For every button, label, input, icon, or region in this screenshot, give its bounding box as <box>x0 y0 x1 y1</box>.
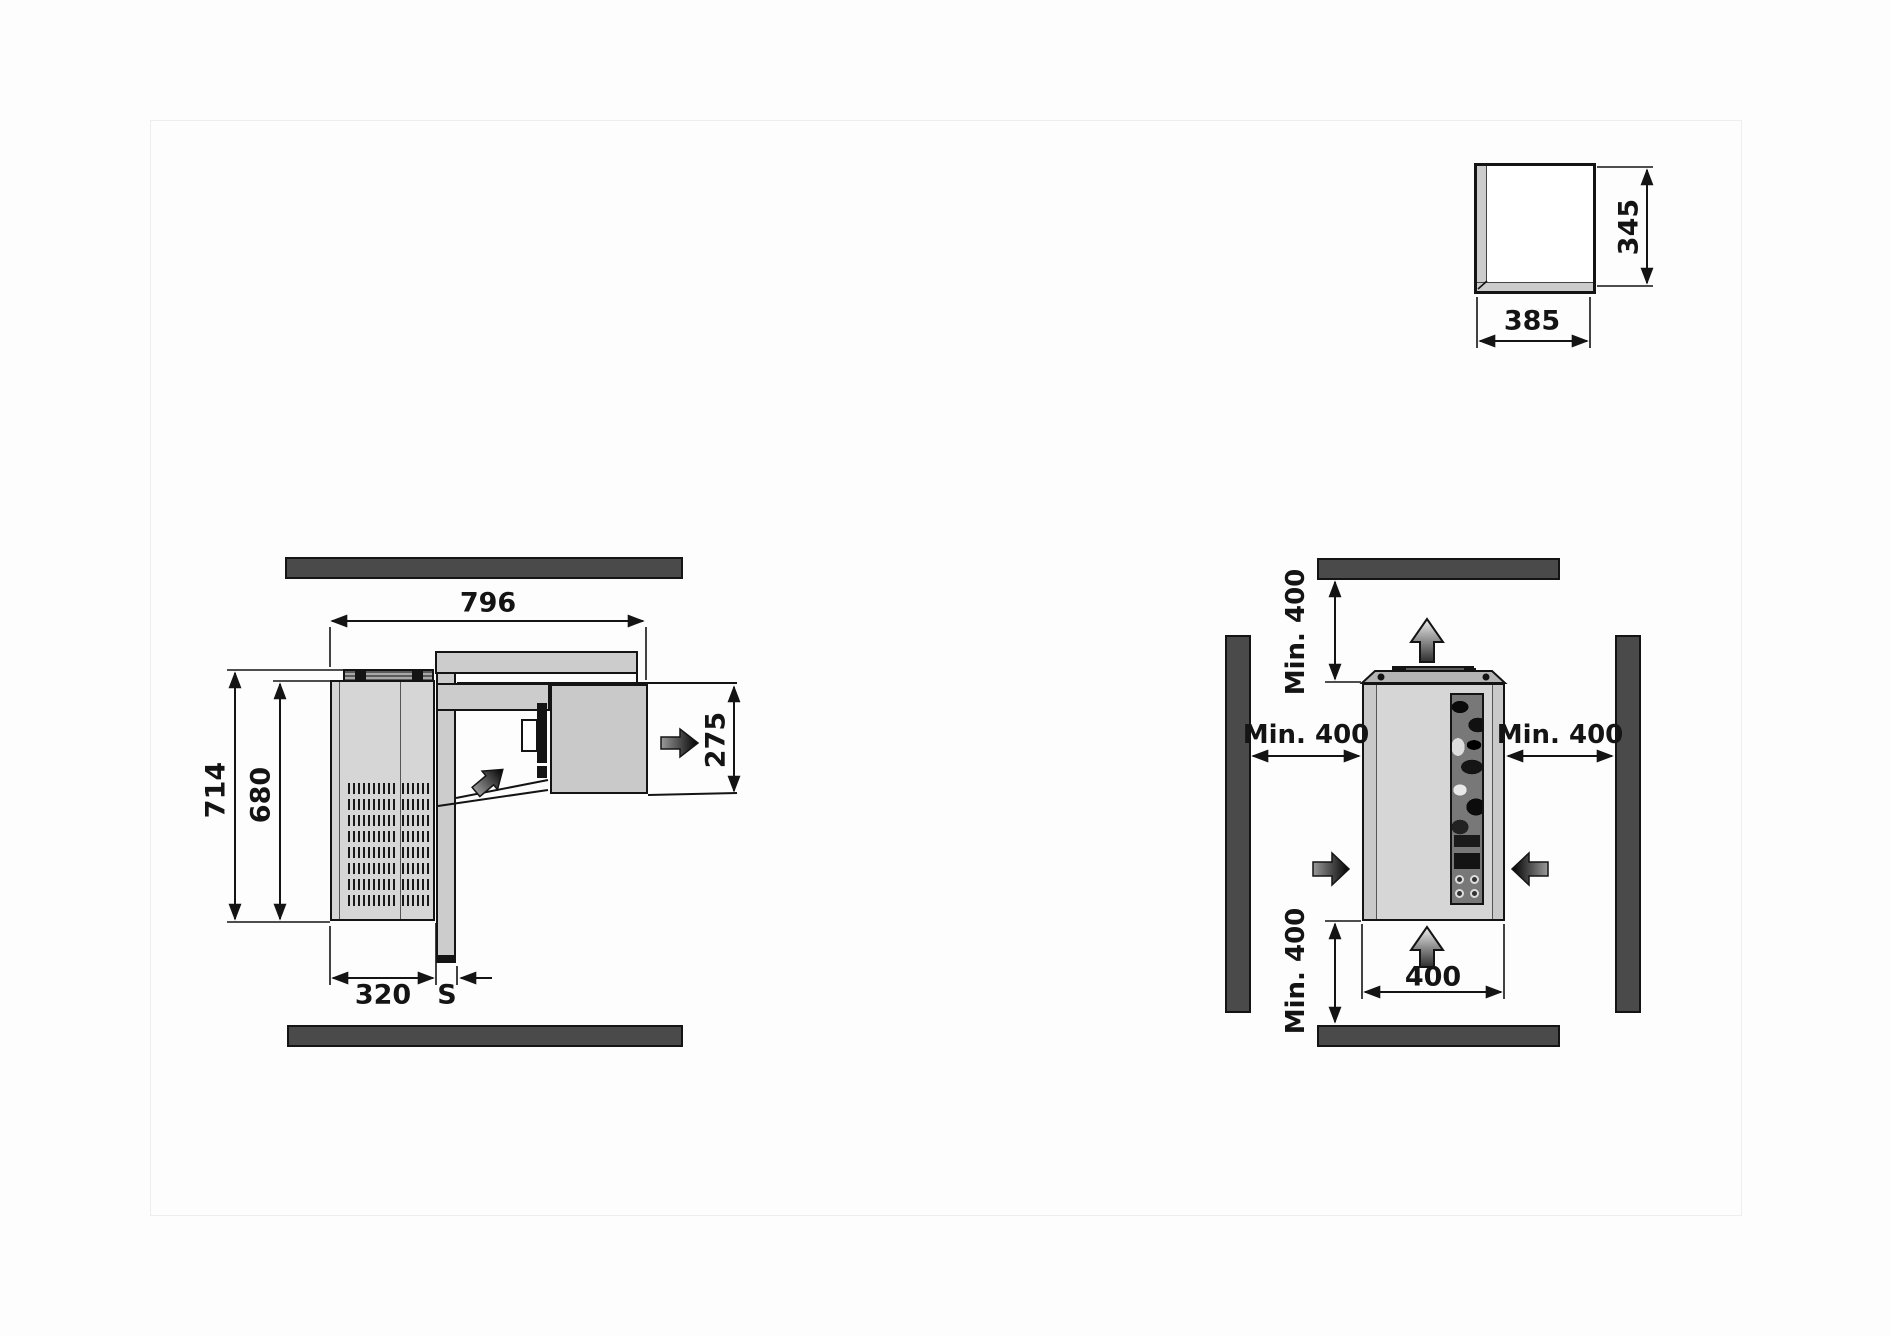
fan-motor-box <box>521 719 538 752</box>
dim-label-796: 796 <box>460 590 516 617</box>
niche-inner-left-face <box>1477 166 1487 291</box>
flange-clamp-left <box>355 671 366 680</box>
right-view-bottom-wall-bar <box>1317 1025 1560 1047</box>
unit-panel-seam-right <box>400 682 401 919</box>
left-view-bottom-wall-bar <box>287 1025 683 1047</box>
installation-diagram: 796 714 680 320 S 275 Min. 400 Min. 400 … <box>0 0 1890 1336</box>
terminal-screw-icon <box>1470 889 1479 898</box>
fan-motor-bar-lower <box>537 766 547 778</box>
unit-panel-seam-left <box>339 682 340 919</box>
dim-label-385: 385 <box>1504 308 1560 335</box>
left-view-top-wall-bar <box>285 557 683 579</box>
niche-band-horizontal <box>435 651 638 674</box>
terminal-screw-icon <box>1455 889 1464 898</box>
dim-label-min400-bottom: Min. 400 <box>1283 908 1309 1035</box>
niche-inner-bottom-face <box>1477 282 1593 291</box>
unit-body-elevation <box>1362 683 1505 921</box>
right-view-right-wall-bar <box>1615 635 1641 1013</box>
through-wall-duct <box>436 683 550 711</box>
dim-label-275: 275 <box>703 712 730 768</box>
unit-body-plan <box>330 680 435 921</box>
dim-label-min400-left: Min. 400 <box>1243 722 1370 748</box>
dim-label-400: 400 <box>1405 964 1461 991</box>
dim-label-320: 320 <box>355 982 411 1009</box>
dim-label-714: 714 <box>203 762 230 818</box>
terminal-screw-icon <box>1455 875 1464 884</box>
dim-label-min400-right: Min. 400 <box>1497 722 1624 748</box>
condenser-louver-grid-right <box>402 783 431 911</box>
right-view-top-wall-bar <box>1317 558 1560 580</box>
dim-label-s: S <box>437 982 456 1009</box>
dim-label-min400-top: Min. 400 <box>1283 569 1309 696</box>
condenser-louver-grid-left <box>348 783 396 911</box>
condenser-coil-window <box>1450 693 1484 905</box>
niche-cutout-square <box>1474 163 1596 294</box>
compressor-band <box>1454 835 1480 847</box>
fan-motor-bar <box>537 703 547 763</box>
mounting-flange <box>343 669 434 682</box>
top-cap-ridged-block <box>1392 666 1474 683</box>
right-view-left-wall-bar <box>1225 635 1251 1013</box>
cap-clamp-right <box>1464 668 1476 681</box>
dim-label-680: 680 <box>248 767 275 823</box>
evaporator-block <box>550 684 648 794</box>
wall-section-end-cap <box>436 955 456 963</box>
terminal-screw-icon <box>1470 875 1479 884</box>
dim-label-345: 345 <box>1616 199 1643 255</box>
flange-clamp-right <box>412 671 423 680</box>
wall-section-vertical <box>436 672 456 963</box>
terminal-box <box>1454 853 1480 869</box>
cap-clamp-left <box>1394 668 1406 681</box>
